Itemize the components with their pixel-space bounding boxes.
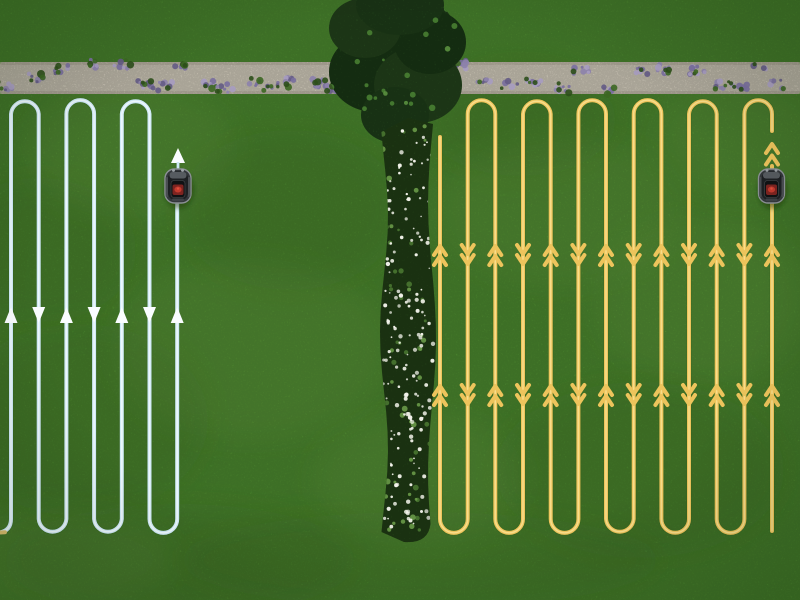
vignette-overlay: [0, 0, 800, 600]
garden-illustration: [0, 0, 800, 600]
garden-aerial-scene: [0, 0, 800, 600]
